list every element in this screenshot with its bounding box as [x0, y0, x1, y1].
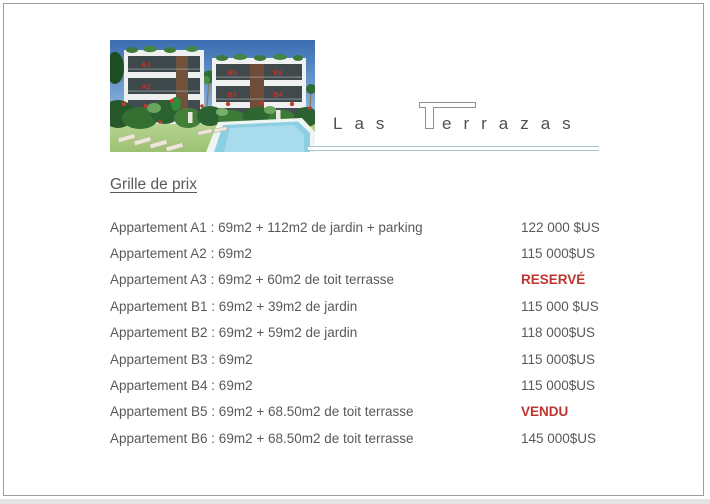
- apartment-label: Appartement A3 : 69m2 + 60m2 de toit ter…: [110, 272, 394, 287]
- logo-word-las: Las: [333, 115, 396, 132]
- price-row: Appartement B5 : 69m2 + 68.50m2 de toit …: [110, 399, 650, 425]
- apartment-price: 122 000 $US: [521, 220, 600, 235]
- price-row: Appartement B1 : 69m2 + 39m2 de jardin 1…: [110, 293, 650, 319]
- apartment-label: Appartement B1 : 69m2 + 39m2 de jardin: [110, 299, 357, 314]
- unit-label: B6: [273, 68, 283, 77]
- apartment-label: Appartement B3 : 69m2: [110, 352, 253, 367]
- apartment-price: 115 000$US: [521, 246, 595, 261]
- apartment-price: VENDU: [521, 404, 568, 419]
- apartment-price: 115 000$US: [521, 352, 595, 367]
- apartment-label: Appartement A1 : 69m2 + 112m2 de jardin …: [110, 220, 423, 235]
- apartment-label: Appartement B4 : 69m2: [110, 378, 253, 393]
- las-terrazas-logo: Las errazas: [333, 98, 599, 138]
- document-viewport: { "window": { "page_background": "#fffff…: [0, 0, 710, 504]
- unit-label: B3: [227, 90, 237, 99]
- price-row: Appartement B2 : 69m2 + 59m2 de jardin 1…: [110, 320, 650, 346]
- page-edge-background: [0, 499, 710, 504]
- unit-label: A2: [141, 82, 151, 91]
- apartment-price: RESERVÉ: [521, 272, 585, 287]
- pool: [206, 118, 315, 152]
- apartment-price: 115 000$US: [521, 378, 595, 393]
- apartment-price: 118 000$US: [521, 325, 595, 340]
- logo-word-errazas: errazas: [442, 115, 583, 132]
- price-row: Appartement B4 : 69m2 115 000$US: [110, 372, 650, 398]
- price-row: Appartement B3 : 69m2 115 000$US: [110, 346, 650, 372]
- apartment-label: Appartement A2 : 69m2: [110, 246, 252, 261]
- apartment-label: Appartement B6 : 69m2 + 68.50m2 de toit …: [110, 431, 414, 446]
- unit-label: A1: [141, 60, 151, 69]
- page-title: Grille de prix: [110, 176, 197, 194]
- apartment-price: 145 000$US: [521, 431, 596, 446]
- price-row: Appartement A2 : 69m2 115 000$US: [110, 240, 650, 266]
- unit-label: B4: [273, 90, 283, 99]
- price-row: Appartement A1 : 69m2 + 112m2 de jardin …: [110, 214, 650, 240]
- price-list: Appartement A1 : 69m2 + 112m2 de jardin …: [110, 214, 650, 452]
- complex-photo: A1 A2 A3 B5 B6 B3 B4: [110, 40, 315, 152]
- logo-divider: [308, 146, 599, 151]
- unit-label: B5: [227, 68, 237, 77]
- apartment-label: Appartement B2 : 69m2 + 59m2 de jardin: [110, 325, 357, 340]
- price-row: Appartement A3 : 69m2 + 60m2 de toit ter…: [110, 267, 650, 293]
- apartment-label: Appartement B5 : 69m2 + 68.50m2 de toit …: [110, 404, 414, 419]
- apartment-price: 115 000 $US: [521, 299, 599, 314]
- complex-photo-illustration: A1 A2 A3 B5 B6 B3 B4: [110, 40, 315, 152]
- document-page: A1 A2 A3 B5 B6 B3 B4: [3, 3, 704, 496]
- price-row: Appartement B6 : 69m2 + 68.50m2 de toit …: [110, 425, 650, 451]
